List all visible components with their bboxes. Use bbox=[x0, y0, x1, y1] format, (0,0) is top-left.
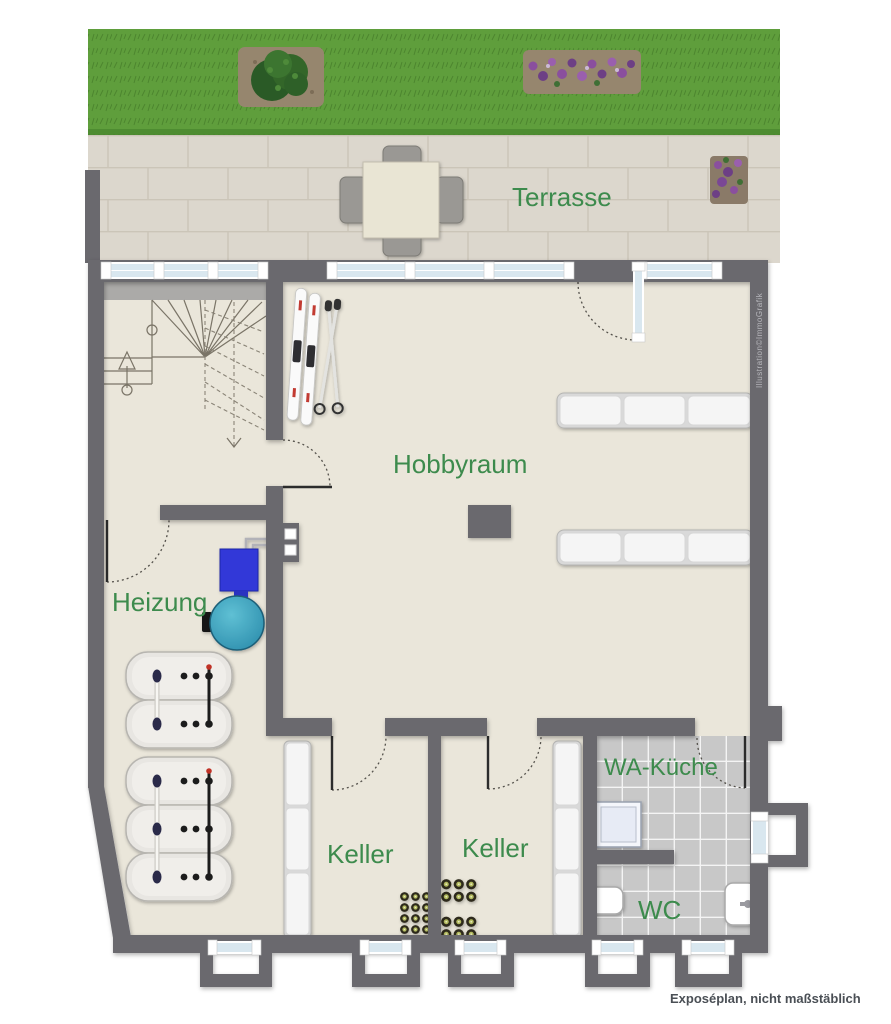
interior-wall bbox=[266, 280, 283, 440]
interior-wall bbox=[385, 718, 487, 736]
window bbox=[360, 940, 411, 955]
terrace-chair bbox=[436, 177, 463, 223]
floor-plan: Terrasse Hobbyraum Heizung Keller Keller… bbox=[0, 0, 891, 1024]
oil-tank bbox=[126, 853, 232, 901]
oil-tank bbox=[126, 652, 232, 700]
meter-box bbox=[285, 529, 296, 539]
window bbox=[637, 262, 722, 279]
stair-landing-strip bbox=[104, 280, 266, 300]
shelf-keller-1 bbox=[284, 741, 311, 938]
wine-rack bbox=[440, 878, 478, 903]
terrace-table bbox=[363, 162, 439, 238]
wine-rack bbox=[399, 891, 432, 913]
light-shaft bbox=[767, 803, 808, 867]
washing-machine bbox=[596, 802, 641, 847]
window bbox=[592, 940, 643, 955]
oil-tanks bbox=[126, 652, 232, 901]
support-pillar bbox=[468, 505, 511, 538]
light-shaft bbox=[585, 953, 650, 987]
terrace-door bbox=[632, 262, 645, 342]
label-heizung: Heizung bbox=[112, 587, 207, 617]
light-shaft bbox=[352, 953, 420, 987]
oil-tank bbox=[126, 700, 232, 748]
boiler bbox=[220, 549, 258, 591]
interior-wall bbox=[588, 850, 674, 864]
interior-wall bbox=[428, 736, 441, 935]
window bbox=[327, 262, 574, 279]
window bbox=[682, 940, 734, 955]
terrace bbox=[85, 135, 780, 263]
shelf-hobby-bottom bbox=[557, 530, 753, 565]
label-keller-1: Keller bbox=[327, 839, 394, 869]
water-tank bbox=[210, 596, 264, 650]
interior-wall bbox=[160, 505, 266, 520]
bush bbox=[238, 47, 324, 107]
interior-wall bbox=[266, 486, 283, 736]
flower-bed bbox=[523, 50, 641, 94]
wall-jog bbox=[768, 706, 782, 741]
window bbox=[101, 262, 268, 279]
label-hobbyraum: Hobbyraum bbox=[393, 449, 527, 479]
floor-plan-svg: Terrasse Hobbyraum Heizung Keller Keller… bbox=[0, 0, 891, 1024]
wine-rack bbox=[399, 913, 432, 935]
scale-disclaimer: Exposéplan, nicht maßstäblich bbox=[670, 991, 861, 1006]
label-keller-2: Keller bbox=[462, 833, 529, 863]
light-shaft bbox=[675, 953, 742, 987]
label-wc: WC bbox=[638, 895, 681, 925]
window bbox=[455, 940, 506, 955]
terrace-planter bbox=[710, 156, 748, 204]
label-wa-kueche: WA-Küche bbox=[604, 754, 718, 781]
oil-tank bbox=[126, 757, 232, 805]
oil-tank bbox=[126, 805, 232, 853]
light-shaft bbox=[448, 953, 514, 987]
shelf-hobby-top bbox=[557, 393, 753, 428]
terrace-side-wall bbox=[85, 170, 100, 263]
window bbox=[751, 812, 768, 863]
illustration-credit: Illustration©ImmoGrafik bbox=[755, 292, 764, 388]
exterior-wall-left bbox=[88, 260, 104, 788]
light-shaft bbox=[200, 953, 272, 987]
meter-box bbox=[285, 545, 296, 555]
window bbox=[208, 940, 261, 955]
interior-wall bbox=[266, 718, 332, 736]
interior-wall bbox=[537, 718, 695, 736]
lawn bbox=[88, 29, 780, 136]
shelf-keller-2 bbox=[553, 741, 581, 938]
label-terrasse: Terrasse bbox=[512, 182, 612, 212]
interior-wall bbox=[583, 736, 597, 935]
